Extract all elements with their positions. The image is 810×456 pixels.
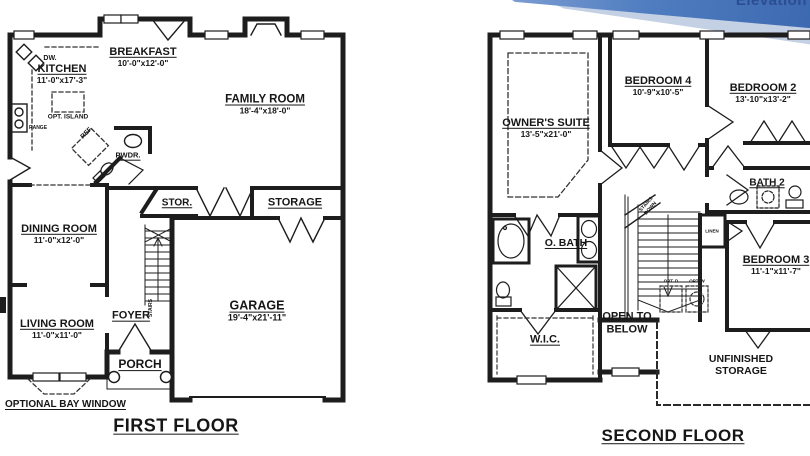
room-label-bedroom-4: BEDROOM 4 10'-9"x10'-5" bbox=[625, 75, 692, 97]
room-label-dining-room: DINING ROOM 11'-0"x12'-0" bbox=[21, 223, 97, 245]
room-label-owners-bath: O. BATH bbox=[545, 237, 587, 249]
floor-plan-page: Elevation bbox=[0, 0, 810, 456]
annotation-stairs: STAIRS bbox=[149, 299, 155, 317]
kitchen-fixtures bbox=[11, 44, 44, 132]
first-floor-stairs bbox=[145, 225, 172, 305]
annotation-open-to-below: OPEN TO BELOW bbox=[602, 310, 651, 335]
room-label-breakfast: BREAKFAST 10'-0"x12'-0" bbox=[109, 46, 176, 68]
annotation-opt-d: OPT. D bbox=[664, 278, 679, 283]
fireplace bbox=[251, 24, 281, 35]
room-label-bedroom-3: BEDROOM 3 11'-1"x11'-7" bbox=[743, 254, 810, 276]
annotation-linen: LINEN bbox=[705, 228, 719, 233]
annotation-opt-w: OPT. W bbox=[689, 278, 705, 283]
room-label-porch: PORCH bbox=[118, 358, 161, 372]
room-label-bedroom-2: BEDROOM 2 13'-10"x13'-2" bbox=[730, 82, 797, 104]
bath2-fixtures bbox=[730, 186, 803, 208]
room-label-stor: STOR. bbox=[162, 197, 192, 209]
annotation-opt-island: OPT. ISLAND bbox=[48, 113, 88, 120]
second-floor-stairs bbox=[625, 195, 700, 318]
room-label-foyer: FOYER bbox=[112, 310, 150, 323]
room-label-powder: PWDR. bbox=[116, 152, 141, 161]
room-label-family-room: FAMILY ROOM 18'-4"x18'-0" bbox=[225, 94, 305, 117]
annotation-unfinished-storage: UNFINISHED STORAGE bbox=[709, 353, 773, 377]
second-floor-title: SECOND FLOOR bbox=[602, 426, 745, 446]
first-floor-dashed bbox=[28, 47, 108, 394]
floor-plan-drawing bbox=[0, 0, 810, 456]
room-label-living-room: LIVING ROOM 11'-0"x11'-0" bbox=[20, 318, 94, 340]
first-floor-title: FIRST FLOOR bbox=[113, 416, 239, 437]
annotation-optional-bay-window: OPTIONAL BAY WINDOW bbox=[5, 399, 126, 411]
room-label-storage: STORAGE bbox=[268, 197, 322, 210]
room-label-owners-suite: OWNER'S SUITE 13'-5"x21'-0" bbox=[502, 117, 590, 139]
room-label-garage: GARAGE 19'-4"x21'-11" bbox=[228, 299, 286, 324]
room-label-bath-2: BATH 2 bbox=[749, 177, 784, 189]
annotation-dw: DW. bbox=[43, 55, 56, 63]
room-label-kitchen: KITCHEN 11'-0"x17'-3" bbox=[37, 63, 87, 85]
annotation-range: RANGE bbox=[29, 126, 47, 132]
room-label-wic: W.I.C. bbox=[530, 334, 560, 347]
